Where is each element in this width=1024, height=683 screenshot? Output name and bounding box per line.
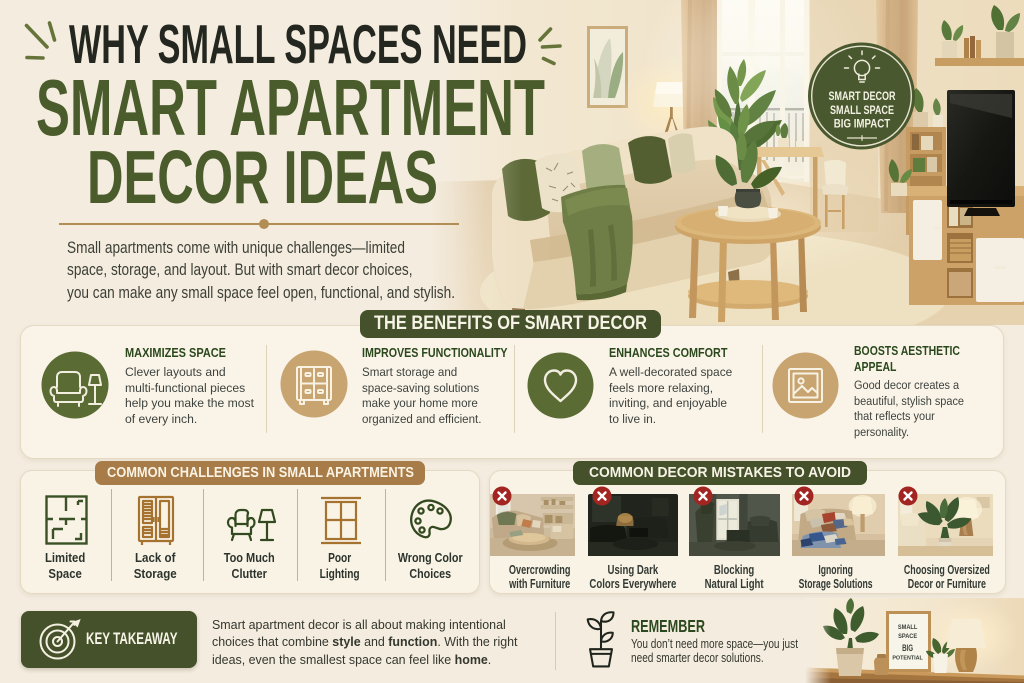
svg-text:POTENTIAL: POTENTIAL bbox=[892, 656, 923, 662]
svg-text:BIG: BIG bbox=[902, 643, 913, 653]
svg-text:SMALL: SMALL bbox=[898, 624, 918, 631]
svg-text:SPACE: SPACE bbox=[898, 633, 918, 640]
svg-text:BIG IMPACT: BIG IMPACT bbox=[834, 119, 891, 131]
svg-text:SMART DECOR: SMART DECOR bbox=[829, 91, 897, 103]
svg-text:SMALL SPACE: SMALL SPACE bbox=[830, 105, 894, 117]
